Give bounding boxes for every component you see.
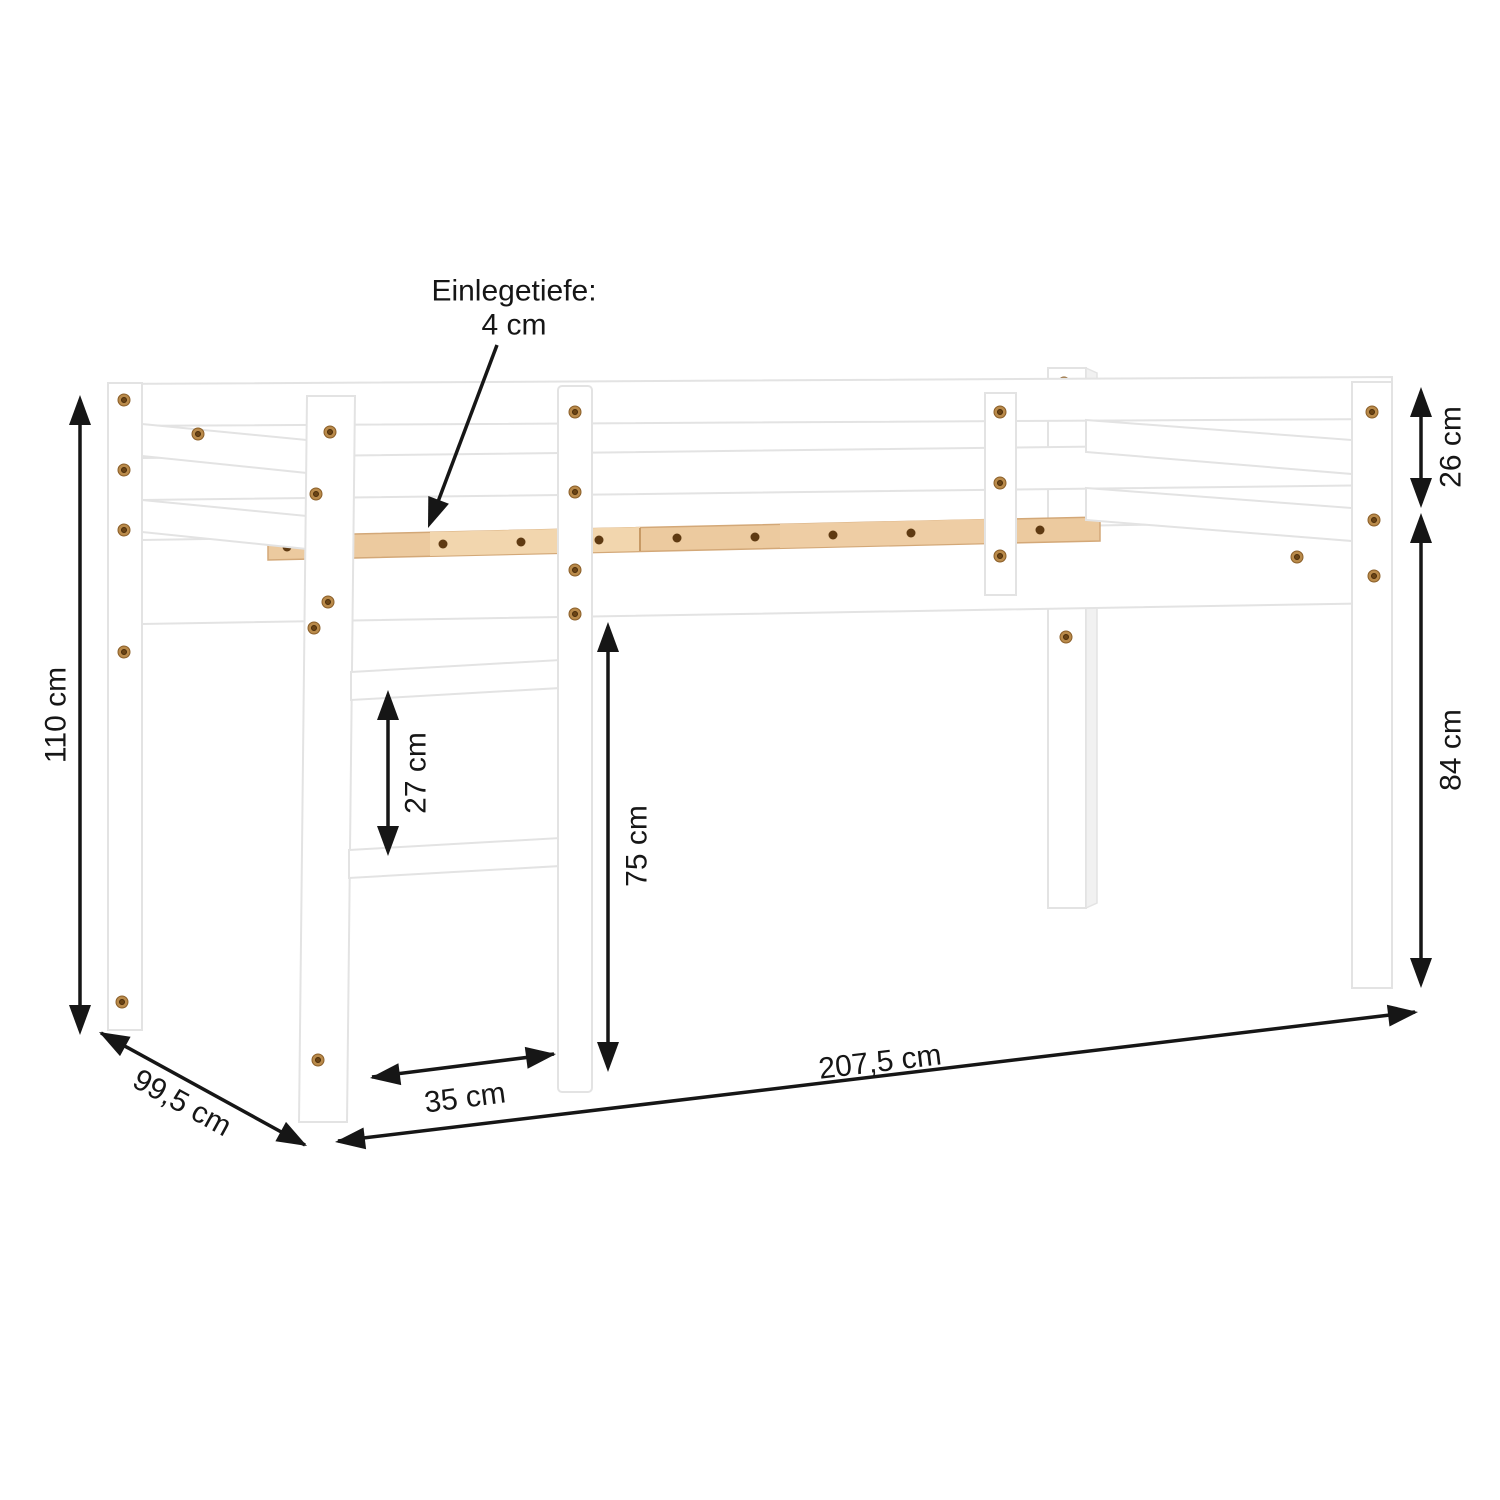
label-ladder-width: 35 cm bbox=[422, 1076, 507, 1119]
bed-post-front-left bbox=[108, 383, 142, 1030]
label-depth: 99,5 cm bbox=[127, 1063, 236, 1143]
ladder-rung-upper bbox=[351, 660, 560, 700]
dimension-guard-rail-height: 26 cm bbox=[1410, 387, 1468, 508]
diagram-page: 110 cm Einlegetiefe: 4 cm 26 cm 84 cm 27… bbox=[0, 0, 1500, 1500]
dimension-clearance-height: 75 cm bbox=[597, 622, 654, 1072]
label-leg-height: 84 cm bbox=[1435, 709, 1468, 791]
dimension-total-height: 110 cm bbox=[40, 395, 92, 1035]
ladder-rail-left bbox=[299, 396, 355, 1122]
bed-post-front-right bbox=[1352, 382, 1392, 988]
label-length: 207,5 cm bbox=[817, 1038, 943, 1085]
dimension-ladder-width: 35 cm bbox=[370, 1047, 556, 1120]
label-rung-spacing: 27 cm bbox=[400, 732, 433, 814]
dimension-rung-spacing: 27 cm bbox=[377, 690, 433, 856]
label-total-height: 110 cm bbox=[40, 667, 73, 763]
bed-illustration bbox=[108, 368, 1392, 1122]
guard-rail-top bbox=[108, 377, 1392, 426]
guard-support-middle bbox=[985, 393, 1016, 595]
callout-insert-depth-line1: Einlegetiefe: bbox=[431, 275, 596, 308]
ladder-rung-lower bbox=[349, 838, 560, 878]
dimension-depth: 99,5 cm bbox=[99, 1032, 307, 1146]
callout-insert-depth-line2: 4 cm bbox=[481, 309, 546, 342]
diagram-canvas: 110 cm Einlegetiefe: 4 cm 26 cm 84 cm 27… bbox=[0, 0, 1500, 1500]
label-clearance-height: 75 cm bbox=[621, 805, 654, 887]
ladder-rail-right bbox=[558, 386, 592, 1092]
label-guard-rail-height: 26 cm bbox=[1435, 406, 1468, 488]
dimension-leg-height: 84 cm bbox=[1410, 513, 1468, 988]
